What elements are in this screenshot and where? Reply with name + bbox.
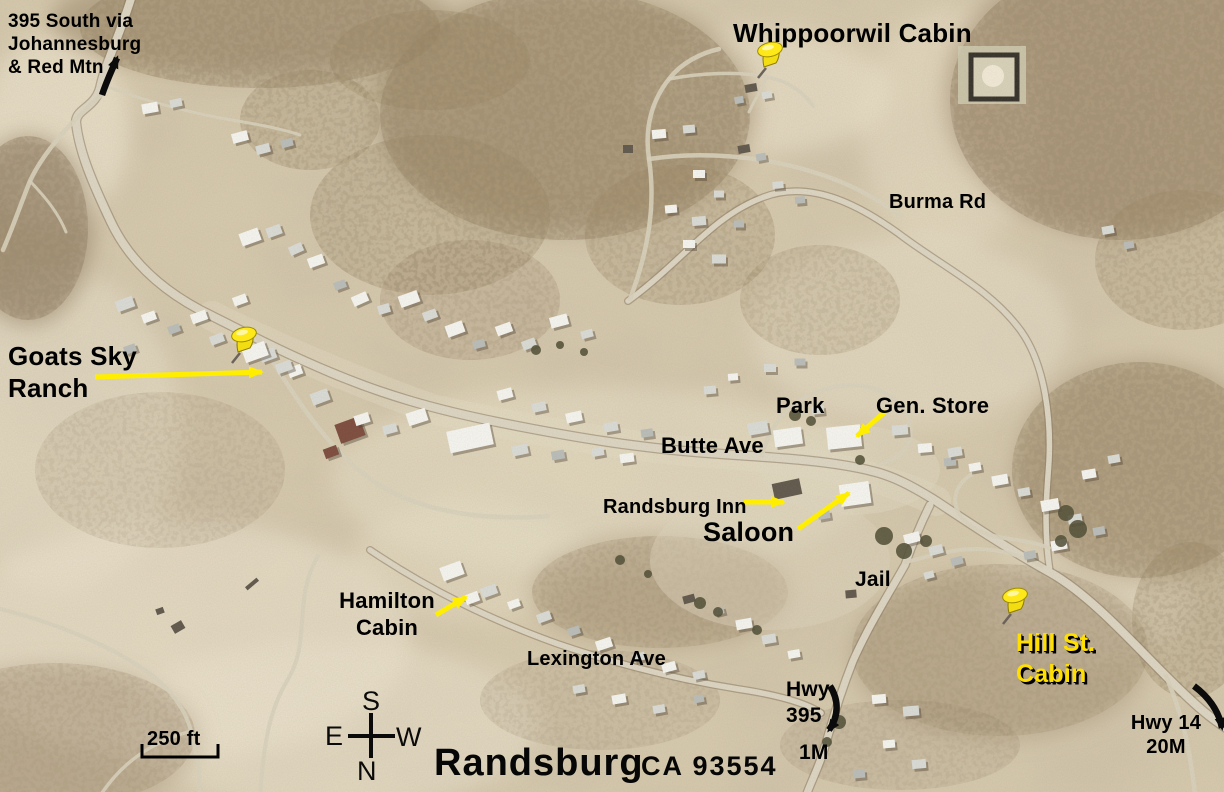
arrow-hwy-14	[1194, 686, 1222, 728]
compass-right: W	[396, 724, 421, 751]
arrow-hwy-395-south	[829, 686, 837, 730]
compass-cross	[348, 713, 395, 758]
arrow-goats-sky-ranch	[95, 372, 262, 377]
scale-bar-label: 250 ft	[147, 727, 200, 751]
compass-left: E	[325, 723, 343, 750]
compass-bottom: N	[357, 758, 377, 785]
arrow-395-north	[102, 58, 117, 95]
arrow-hamilton-cabin	[436, 597, 466, 615]
town-title: Randsburg	[434, 744, 644, 782]
pin-hill-st	[1001, 586, 1028, 624]
pin-goats-sky-ranch	[230, 325, 257, 363]
aerial-map: 395 South viaJohannesburg& Red MtnWhippo…	[0, 0, 1224, 792]
pin-whippoorwil	[756, 40, 783, 78]
annotation-overlay	[0, 0, 1224, 792]
compass-top: S	[362, 688, 380, 715]
town-zip: CA 93554	[641, 753, 778, 780]
arrow-gen-store	[857, 411, 886, 436]
arrow-saloon	[798, 493, 849, 529]
